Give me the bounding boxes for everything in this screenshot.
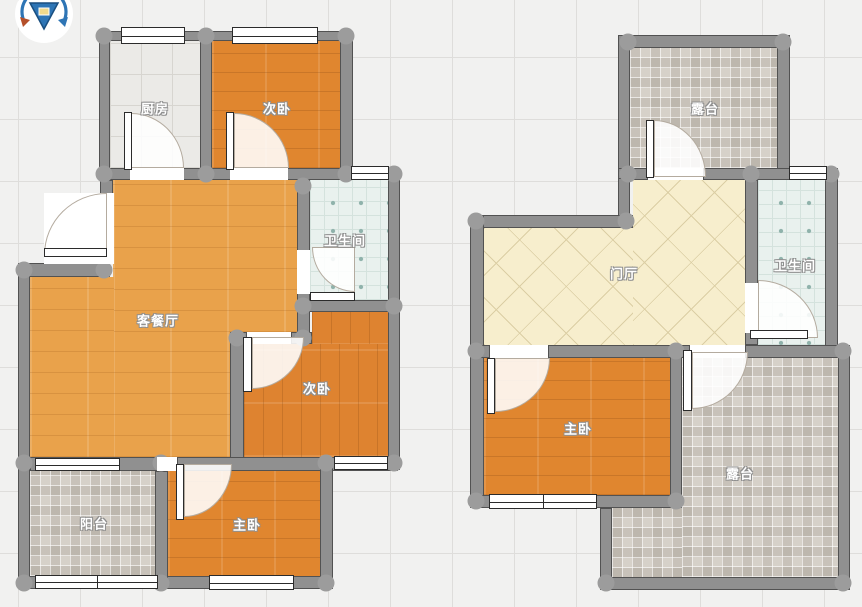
window[interactable] [232,27,318,44]
door-opening [130,168,184,180]
wall-segment [838,345,850,590]
room-entry-hall-floor[interactable] [633,180,745,345]
wall-joint [668,343,685,360]
window[interactable] [121,27,185,44]
door-leaf[interactable] [310,292,355,301]
room-bedroom3-floor[interactable] [312,312,388,345]
wall-segment [18,263,30,589]
room-label-entry-hall: 门厅 [610,264,638,283]
room-label-balcony: 阳台 [80,514,108,533]
wall-joint [198,166,215,183]
wall-segment [825,168,838,358]
door-opening [490,345,548,358]
room-label-bathroom1: 卫生间 [324,231,366,250]
door-leaf[interactable] [44,248,107,257]
window[interactable] [334,456,388,470]
door-leaf[interactable] [683,350,692,411]
window[interactable] [351,166,389,180]
wall-joint [386,455,403,472]
door-leaf[interactable] [750,330,808,339]
wall-joint [16,262,33,279]
wall-joint [598,575,615,592]
window[interactable] [789,166,827,180]
window[interactable] [489,494,597,509]
door-opening [157,457,177,471]
wall-joint [668,493,685,510]
wall-joint [96,28,113,45]
wall-joint [295,298,312,315]
door-leaf[interactable] [176,464,184,520]
compass-svg [14,0,74,44]
wall-joint [468,213,485,230]
room-label-master2: 主卧 [564,419,592,438]
door-leaf[interactable] [243,337,252,392]
wall-segment [230,332,244,458]
room-label-living-dining: 客餐厅 [137,311,179,330]
wall-segment [99,31,110,180]
room-label-bedroom2: 次卧 [263,99,291,118]
rotate-compass-icon[interactable] [14,0,74,44]
wall-joint [468,343,485,360]
wall-joint [295,178,312,195]
window[interactable] [35,458,120,471]
wall-joint [338,28,355,45]
wall-joint [318,455,335,472]
wall-segment [470,215,633,228]
wall-joint [468,493,485,510]
wall-segment [600,577,850,590]
wall-segment [618,35,790,48]
wall-segment [320,457,333,589]
wall-joint [743,166,760,183]
wall-segment [618,35,630,180]
wall-segment [200,31,212,180]
wall-segment [340,31,353,180]
wall-joint [16,575,33,592]
door-leaf[interactable] [226,112,234,170]
wall-joint [835,343,852,360]
wall-joint [386,298,403,315]
room-entry-hall-floor[interactable] [484,228,633,345]
door-leaf[interactable] [487,358,495,414]
wall-segment [777,35,790,180]
wall-joint [96,166,113,183]
room-terrace-lower-floor[interactable] [612,508,682,578]
wall-joint [775,34,792,51]
wall-segment [155,471,168,581]
wall-joint [198,28,215,45]
door-opening [297,250,310,294]
wall-segment [388,168,400,470]
window[interactable] [35,575,158,589]
room-label-bathroom2: 卫生间 [774,256,816,275]
door-leaf[interactable] [646,120,654,178]
window[interactable] [209,575,294,590]
wall-joint [16,455,33,472]
room-living-dining-floor[interactable] [113,332,230,457]
wall-joint [620,166,637,183]
wall-joint [96,262,113,279]
floor-plan-canvas: 厨房次卧卫生间客餐厅次卧阳台主卧露台门厅卫生间主卧露台 [0,0,862,607]
wall-segment [470,215,484,508]
wall-joint [318,575,335,592]
room-label-terrace-lower: 露台 [726,464,754,483]
room-living-dining-floor[interactable] [113,180,297,332]
room-label-kitchen: 厨房 [141,99,169,118]
room-label-bedroom3: 次卧 [303,379,331,398]
wall-joint [618,213,635,230]
wall-joint [620,34,637,51]
room-label-terrace-upper: 露台 [691,99,719,118]
door-leaf[interactable] [124,112,132,170]
wall-segment [670,345,682,508]
door-opening [745,283,758,333]
room-label-master1: 主卧 [233,515,261,534]
wall-joint [835,575,852,592]
door-opening [230,168,288,180]
room-living-dining-floor[interactable] [30,277,114,457]
